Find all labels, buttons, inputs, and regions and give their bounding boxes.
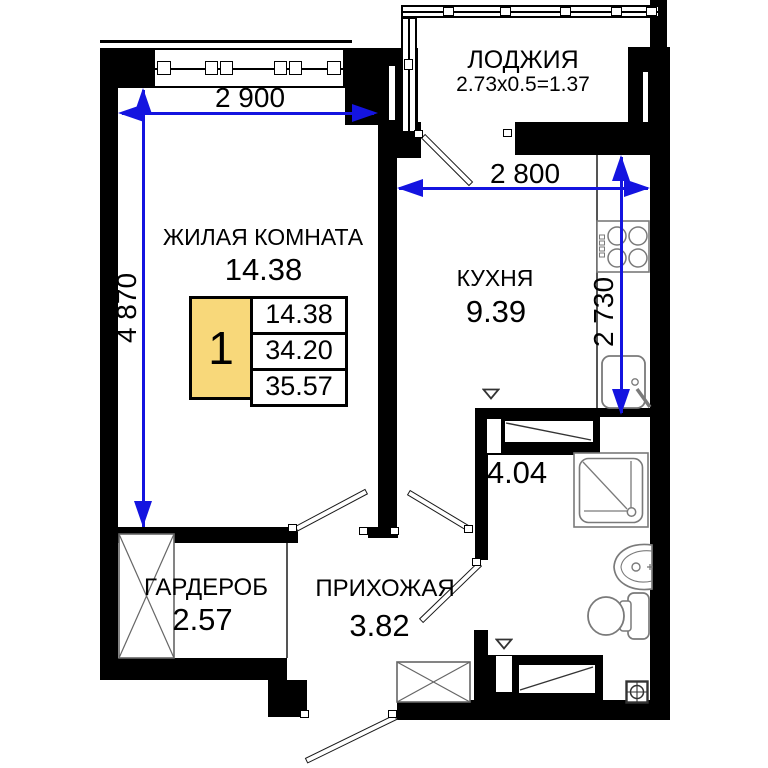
door-hinge: [288, 524, 297, 532]
wall: [100, 48, 155, 88]
loggia-glazing-side: [401, 17, 417, 133]
dimension-arrow: [624, 179, 650, 197]
toilet-icon: [587, 590, 651, 642]
wall: [474, 630, 488, 703]
floor-plan: 2 900 4 870 2 800 2 730 ЖИЛАЯ КОМНАТА 14…: [0, 0, 768, 768]
legend-room-count: 1: [189, 296, 253, 400]
door-leaf-kitchen: [407, 490, 473, 533]
door-hinge: [472, 558, 481, 566]
door-hinge: [464, 525, 473, 533]
door-hinge: [300, 710, 309, 718]
dimension-arrow: [352, 104, 378, 122]
dimension-kitchen-height: 2 730: [588, 232, 618, 392]
vent-shaft-icon: [504, 420, 594, 443]
door-leaf-entrance: [305, 714, 398, 763]
door-hinge: [390, 527, 399, 535]
legend-area-no-balcony: 34.20: [250, 332, 348, 371]
room-label-kitchen: КУХНЯ: [430, 265, 560, 292]
room-label-hallway: ПРИХОЖАЯ: [300, 575, 470, 603]
entrance-cabinet-icon: [396, 661, 471, 703]
dimension-arrow: [612, 155, 630, 181]
door-hinge: [503, 129, 512, 137]
room-label-wardrobe: ГАРДЕРОБ: [122, 574, 290, 602]
threshold-marker-icon: [482, 388, 500, 400]
door-leaf-living-room: [295, 489, 368, 532]
door-hinge: [359, 527, 368, 535]
wall: [650, 125, 670, 720]
room-area-living: 14.38: [186, 252, 341, 288]
room-area-kitchen: 9.39: [436, 294, 556, 330]
dimension-living-width: 2 900: [155, 82, 345, 114]
dimension-arrow: [612, 389, 630, 415]
threshold-marker-icon: [495, 638, 513, 650]
room-area-loggia: 2.73x0.5=1.37: [438, 73, 608, 97]
wall: [100, 658, 287, 680]
room-label-loggia: ЛОДЖИЯ: [448, 46, 598, 75]
balcony-overhang-line: [100, 40, 352, 43]
dimension-line: [142, 90, 145, 527]
legend-total-area: 35.57: [250, 368, 348, 407]
dimension-kitchen-width: 2 800: [430, 158, 620, 190]
vent-slot: [487, 419, 501, 453]
room-area-wardrobe: 2.57: [140, 602, 265, 638]
vent-shaft-icon: [518, 664, 596, 694]
shower-icon: [573, 452, 650, 529]
floor-drain-icon: [625, 680, 649, 704]
wall-niche: [389, 66, 395, 120]
vent-slot: [496, 656, 512, 692]
door-hinge: [414, 130, 423, 138]
room-area-bathroom: 4.04: [458, 455, 576, 491]
dimension-line: [620, 157, 623, 413]
dimension-living-height: 4 870: [111, 228, 141, 388]
wall: [628, 47, 670, 127]
loggia-glazing: [401, 5, 660, 18]
door-hinge: [388, 710, 397, 718]
dimension-arrow: [134, 88, 152, 114]
legend-table: 1 14.38 34.20 35.57: [189, 296, 348, 407]
wall: [515, 122, 657, 155]
dimension-arrow: [134, 501, 152, 527]
washbasin-icon: [608, 541, 654, 593]
room-area-hallway: 3.82: [317, 608, 442, 644]
dimension-arrow: [397, 179, 423, 197]
wall: [378, 122, 397, 538]
legend-living-area: 14.38: [250, 296, 348, 335]
room-label-living: ЖИЛАЯ КОМНАТА: [140, 224, 386, 251]
wall-niche: [643, 72, 648, 122]
